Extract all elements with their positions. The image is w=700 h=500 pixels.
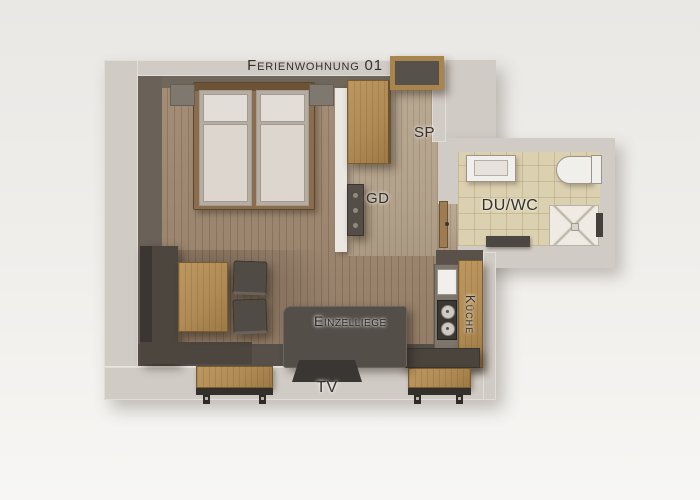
hook bbox=[353, 208, 358, 213]
overhead-cabinet bbox=[390, 56, 444, 90]
stool bbox=[232, 298, 267, 334]
duvet bbox=[260, 124, 305, 202]
plan-title: Ferienwohnung 01 bbox=[240, 58, 390, 73]
cooktop bbox=[437, 300, 457, 340]
pillow bbox=[203, 94, 248, 122]
drawer-foot bbox=[456, 395, 463, 404]
drawer-foot bbox=[203, 395, 210, 404]
daybed-label: Einzelliege bbox=[314, 314, 387, 328]
mattress-right bbox=[256, 90, 309, 206]
tv-label: TV bbox=[306, 380, 348, 396]
floor-plan: Küche Einzelliege Ferienwohnung 01 SP GD… bbox=[0, 0, 700, 500]
drawer-foot bbox=[414, 395, 421, 404]
kitchen-bench-drawer bbox=[408, 368, 471, 388]
burner bbox=[441, 305, 455, 319]
bathroom-door-handle bbox=[445, 222, 449, 226]
kitchen-sink bbox=[437, 269, 457, 295]
hook bbox=[353, 223, 358, 228]
storage-drawer-front bbox=[196, 388, 273, 395]
pillow bbox=[260, 94, 305, 122]
kitchen-bench bbox=[402, 348, 480, 368]
toilet-tank bbox=[591, 155, 602, 184]
washbasin-bowl bbox=[474, 160, 508, 176]
nightstand-right bbox=[309, 84, 334, 106]
left-wall bbox=[104, 60, 138, 400]
kitchen-drawer-front bbox=[408, 388, 471, 395]
bath-mat bbox=[486, 236, 530, 247]
nightstand-left bbox=[170, 84, 195, 106]
corner-bench-horizontal bbox=[140, 342, 252, 364]
daybed: Einzelliege bbox=[283, 306, 407, 368]
stool bbox=[232, 260, 267, 295]
duvet bbox=[203, 124, 248, 202]
mattress-left bbox=[199, 90, 252, 206]
coatrack-label: GD bbox=[366, 191, 390, 206]
toilet-bowl bbox=[556, 156, 593, 184]
storage-drawer bbox=[196, 366, 273, 388]
wardrobe-sp bbox=[347, 80, 391, 164]
right-wall-lower bbox=[483, 252, 496, 400]
shower-drain bbox=[571, 223, 579, 231]
bathroom-label: DU/WC bbox=[468, 198, 552, 214]
hook bbox=[353, 193, 358, 198]
closet-label: SP bbox=[414, 125, 435, 140]
shower-tray bbox=[549, 205, 599, 246]
kitchen-label: Küche bbox=[464, 294, 477, 333]
shower-fixture bbox=[596, 213, 603, 237]
dining-table bbox=[178, 262, 228, 332]
divider-wall bbox=[335, 88, 347, 252]
drawer-foot bbox=[259, 395, 266, 404]
burner bbox=[441, 322, 455, 336]
coat-rack-gd bbox=[347, 184, 364, 236]
